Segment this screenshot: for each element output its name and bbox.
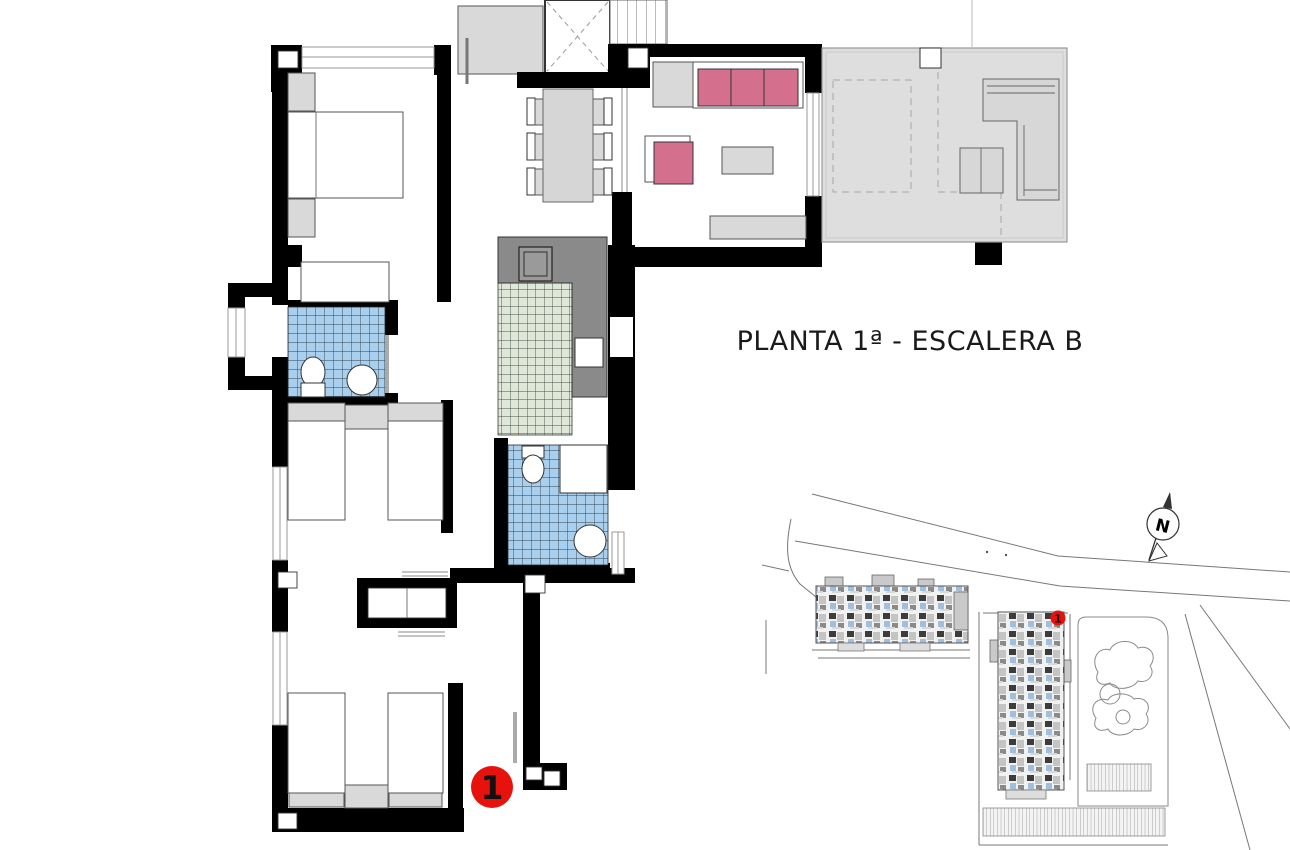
- washbasin-icon: [347, 365, 377, 395]
- kitchen-floor: [498, 283, 572, 435]
- window: [228, 308, 245, 357]
- armchair: [645, 136, 693, 184]
- terrace: [822, 48, 1067, 242]
- bedroom-2: [288, 403, 443, 520]
- door-leaf: [385, 335, 389, 393]
- parking-hatch: [1087, 764, 1151, 791]
- unit-marker-label: 1: [481, 768, 504, 807]
- side-table: [653, 62, 693, 107]
- stairs: [610, 0, 667, 44]
- single-bed: [288, 421, 345, 520]
- north-arrow-tip: [1163, 492, 1172, 509]
- pool-outline: [1093, 694, 1149, 735]
- shower-icon: [560, 445, 607, 493]
- site-unit-marker-label: 1: [1054, 613, 1062, 626]
- apartment-plan: 1: [228, 0, 1067, 832]
- site-plan: N 1: [762, 492, 1290, 850]
- pool-circle: [1116, 710, 1130, 724]
- window: [273, 632, 287, 725]
- bathroom-1: [288, 307, 389, 397]
- master-bedroom: [288, 73, 403, 302]
- single-bed: [388, 693, 443, 793]
- north-compass: N: [1147, 492, 1179, 561]
- toilet-icon: [301, 357, 325, 397]
- headboard: [388, 403, 443, 421]
- building-1: [816, 575, 968, 651]
- nightstand: [288, 73, 315, 111]
- coffee-table: [722, 147, 773, 174]
- floor-plan-drawing: 1 PLANTA 1ª - ESCALERA B: [0, 0, 1290, 850]
- kitchen: [498, 237, 607, 435]
- single-bed: [288, 693, 345, 793]
- plan-title: PLANTA 1ª - ESCALERA B: [737, 326, 1084, 357]
- building-2: [990, 612, 1071, 799]
- parking-hatch: [983, 808, 1165, 836]
- door-threshold: [920, 48, 941, 68]
- footboard: [389, 793, 442, 807]
- double-bed: [288, 112, 403, 198]
- dining-table: [543, 89, 593, 202]
- floor-plan-page: 1 PLANTA 1ª - ESCALERA B: [0, 0, 1290, 850]
- washbasin-icon: [574, 525, 606, 557]
- glazed-partition: [622, 88, 627, 192]
- outdoor-table: [960, 148, 1003, 193]
- hob-icon: [575, 338, 603, 367]
- elevator-lobby: [458, 6, 543, 74]
- nightstand: [288, 199, 315, 237]
- unit-marker: 1: [471, 766, 513, 808]
- sink-icon: [519, 247, 552, 281]
- window: [302, 47, 434, 68]
- living-dining: [527, 62, 806, 239]
- footboard: [289, 793, 344, 807]
- toilet-icon: [522, 446, 544, 483]
- dresser: [301, 262, 389, 302]
- site-unit-marker: 1: [1051, 611, 1066, 626]
- nightstand: [345, 405, 388, 429]
- headboard: [288, 403, 345, 421]
- sideboard: [710, 216, 806, 239]
- window: [807, 93, 819, 196]
- sofa: [693, 62, 803, 108]
- single-bed: [388, 421, 443, 520]
- window: [273, 467, 287, 560]
- pool-outline: [1095, 641, 1153, 688]
- window: [612, 532, 624, 574]
- nightstand: [345, 785, 388, 808]
- bedroom-3: [288, 693, 443, 808]
- pool-area: [1093, 641, 1153, 735]
- door-leaf: [513, 712, 517, 763]
